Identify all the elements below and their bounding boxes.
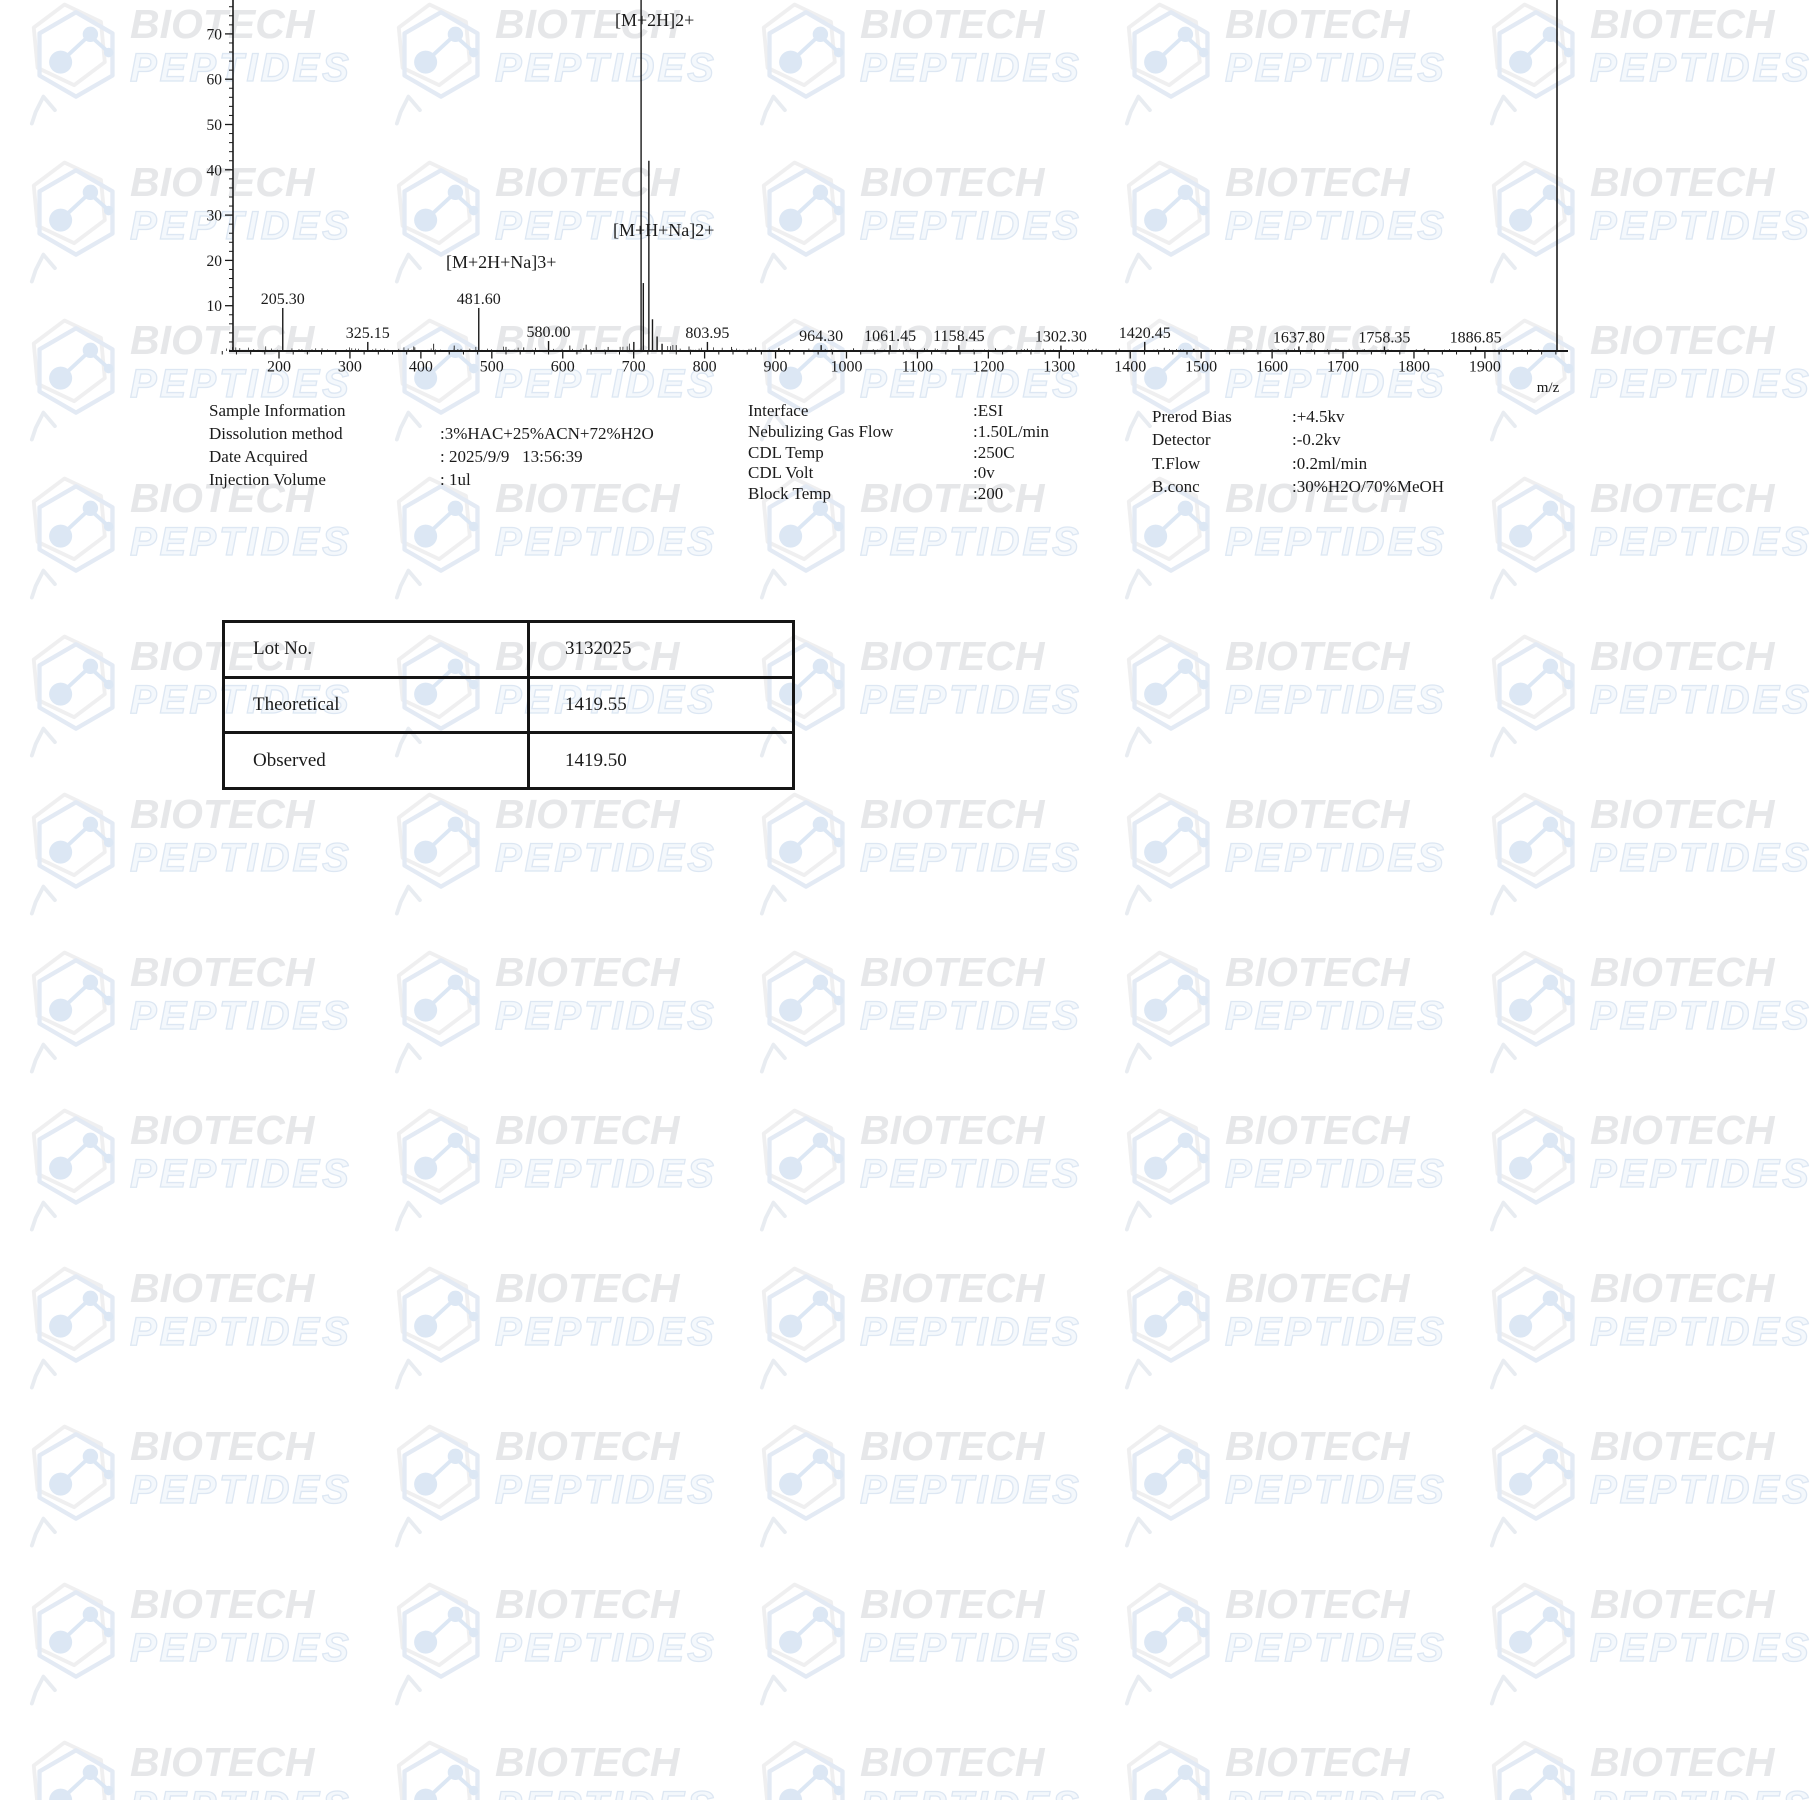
watermark-text: BIOTECH PEPTIDES <box>1590 1426 1810 1510</box>
sample-info-column-1: Sample Information Dissolution method:3%… <box>209 402 654 494</box>
svg-text:700: 700 <box>622 359 646 376</box>
watermark-brand-line1: BIOTECH <box>495 1268 717 1309</box>
hexagon-molecule-icon <box>28 1424 124 1550</box>
watermark-brand-line2: PEPTIDES <box>860 1154 1082 1194</box>
watermark-text: BIOTECH PEPTIDES <box>130 952 352 1036</box>
watermark-tile: BIOTECH PEPTIDES <box>1123 634 1447 760</box>
field-label: Detector <box>1152 431 1292 454</box>
watermark-brand-line1: BIOTECH <box>860 952 1082 993</box>
hexagon-molecule-icon <box>1123 1108 1219 1234</box>
watermark-brand-line1: BIOTECH <box>1590 1110 1810 1151</box>
hexagon-molecule-icon <box>1123 1424 1219 1550</box>
watermark-tile: BIOTECH PEPTIDES <box>393 1582 717 1708</box>
watermark-brand-line2: PEPTIDES <box>1225 996 1447 1036</box>
watermark-brand-line2: PEPTIDES <box>1225 1470 1447 1510</box>
svg-text:1300: 1300 <box>1043 359 1075 376</box>
watermark-tile: BIOTECH PEPTIDES <box>758 1424 1082 1550</box>
hexagon-molecule-icon <box>28 792 124 918</box>
watermark-brand-line2: PEPTIDES <box>1225 1312 1447 1352</box>
watermark-brand-line2: PEPTIDES <box>130 1154 352 1194</box>
svg-text:1420.45: 1420.45 <box>1119 325 1171 342</box>
watermark-brand-line2: PEPTIDES <box>1225 1628 1447 1668</box>
svg-text:60: 60 <box>207 72 223 89</box>
watermark-tile: BIOTECH PEPTIDES <box>1123 950 1447 1076</box>
field-value: : 2025/9/9 13:56:39 <box>440 448 583 471</box>
watermark-text: BIOTECH PEPTIDES <box>130 794 352 878</box>
watermark-brand-line1: BIOTECH <box>860 1426 1082 1467</box>
watermark-brand-line1: BIOTECH <box>1590 794 1810 835</box>
hexagon-molecule-icon <box>28 1108 124 1234</box>
watermark-brand-line2: PEPTIDES <box>130 996 352 1036</box>
watermark-brand-line1: BIOTECH <box>1590 1584 1810 1625</box>
watermark-tile: BIOTECH PEPTIDES <box>393 1424 717 1550</box>
field-label: CDL Volt <box>748 464 973 485</box>
row-value: 1419.55 <box>529 677 794 733</box>
watermark-text: BIOTECH PEPTIDES <box>495 1584 717 1668</box>
watermark-brand-line2: PEPTIDES <box>130 1470 352 1510</box>
watermark-tile: BIOTECH PEPTIDES <box>1488 1266 1810 1392</box>
field-value: : 1ul <box>440 471 471 494</box>
sample-info-column-3: Prerod Bias:+4.5kv Detector:-0.2kv T.Flo… <box>1152 408 1444 501</box>
field-label: Interface <box>748 402 973 423</box>
watermark-brand-line2: PEPTIDES <box>495 838 717 878</box>
watermark-text: BIOTECH PEPTIDES <box>860 952 1082 1036</box>
watermark-brand-line1: BIOTECH <box>860 1742 1082 1783</box>
watermark-brand-line1: BIOTECH <box>495 1584 717 1625</box>
watermark-text: BIOTECH PEPTIDES <box>1590 794 1810 878</box>
watermark-tile: BIOTECH PEPTIDES <box>1488 1740 1810 1800</box>
watermark-tile: BIOTECH PEPTIDES <box>1123 1582 1447 1708</box>
sample-info-section: Sample Information Dissolution method:3%… <box>0 402 1810 522</box>
hexagon-molecule-icon <box>1123 792 1219 918</box>
watermark-brand-line1: BIOTECH <box>495 1426 717 1467</box>
watermark-brand-line1: BIOTECH <box>1225 794 1447 835</box>
watermark-text: BIOTECH PEPTIDES <box>1225 636 1447 720</box>
watermark-text: BIOTECH PEPTIDES <box>1590 1584 1810 1668</box>
watermark-tile: BIOTECH PEPTIDES <box>393 1266 717 1392</box>
field-value: :250C <box>973 444 1015 465</box>
watermark-brand-line1: BIOTECH <box>1590 636 1810 677</box>
field-value: :ESI <box>973 402 1003 423</box>
watermark-brand-line1: BIOTECH <box>860 636 1082 677</box>
report-page: BIOTECH PEPTIDES BIOTECH PEPTIDES <box>0 0 1810 1800</box>
watermark-brand-line2: PEPTIDES <box>860 1628 1082 1668</box>
watermark-text: BIOTECH PEPTIDES <box>495 1742 717 1800</box>
svg-text:40: 40 <box>207 162 223 179</box>
watermark-brand-line1: BIOTECH <box>130 1742 352 1783</box>
watermark-tile: BIOTECH PEPTIDES <box>1488 1582 1810 1708</box>
watermark-brand-line1: BIOTECH <box>495 1742 717 1783</box>
watermark-brand-line2: PEPTIDES <box>1590 1628 1810 1668</box>
field-label: T.Flow <box>1152 455 1292 478</box>
svg-text:500: 500 <box>480 359 504 376</box>
svg-text:1900: 1900 <box>1469 359 1501 376</box>
table-row: Observed 1419.50 <box>224 733 794 789</box>
watermark-brand-line2: PEPTIDES <box>130 1628 352 1668</box>
hexagon-molecule-icon <box>28 1266 124 1392</box>
watermark-text: BIOTECH PEPTIDES <box>130 1110 352 1194</box>
field-value: :-0.2kv <box>1292 431 1341 454</box>
watermark-tile: BIOTECH PEPTIDES <box>1488 792 1810 918</box>
hexagon-molecule-icon <box>393 1108 489 1234</box>
watermark-brand-line2: PEPTIDES <box>860 1786 1082 1800</box>
svg-text:964.30: 964.30 <box>799 328 843 345</box>
watermark-text: BIOTECH PEPTIDES <box>860 1584 1082 1668</box>
hexagon-molecule-icon <box>28 1740 124 1800</box>
watermark-text: BIOTECH PEPTIDES <box>860 1426 1082 1510</box>
watermark-brand-line1: BIOTECH <box>495 794 717 835</box>
hexagon-molecule-icon <box>393 1582 489 1708</box>
watermark-text: BIOTECH PEPTIDES <box>1225 952 1447 1036</box>
hexagon-molecule-icon <box>1123 1266 1219 1392</box>
field-value: :0.2ml/min <box>1292 455 1367 478</box>
hexagon-molecule-icon <box>393 1424 489 1550</box>
watermark-tile: BIOTECH PEPTIDES <box>1488 634 1810 760</box>
field-value: :30%H2O/70%MeOH <box>1292 478 1444 501</box>
field-label: B.conc <box>1152 478 1292 501</box>
watermark-text: BIOTECH PEPTIDES <box>1590 1268 1810 1352</box>
hexagon-molecule-icon <box>28 950 124 1076</box>
hexagon-molecule-icon <box>758 1108 854 1234</box>
watermark-tile: BIOTECH PEPTIDES <box>1488 1424 1810 1550</box>
watermark-text: BIOTECH PEPTIDES <box>860 1742 1082 1800</box>
hexagon-molecule-icon <box>1488 1424 1584 1550</box>
watermark-brand-line1: BIOTECH <box>1225 1584 1447 1625</box>
sample-info-column-2: Interface:ESI Nebulizing Gas Flow:1.50L/… <box>748 402 1049 506</box>
watermark-brand-line2: PEPTIDES <box>1590 680 1810 720</box>
watermark-brand-line1: BIOTECH <box>495 1110 717 1151</box>
svg-text:[M+2H]2+: [M+2H]2+ <box>615 10 694 30</box>
hexagon-molecule-icon <box>758 1582 854 1708</box>
svg-text:20: 20 <box>207 253 223 270</box>
watermark-brand-line1: BIOTECH <box>1225 1110 1447 1151</box>
svg-text:1500: 1500 <box>1185 359 1217 376</box>
watermark-text: BIOTECH PEPTIDES <box>130 1584 352 1668</box>
svg-text:481.60: 481.60 <box>457 291 501 308</box>
svg-text:1302.30: 1302.30 <box>1035 329 1087 346</box>
hexagon-molecule-icon <box>758 1740 854 1800</box>
watermark-text: BIOTECH PEPTIDES <box>1225 1584 1447 1668</box>
watermark-tile: BIOTECH PEPTIDES <box>758 1582 1082 1708</box>
watermark-text: BIOTECH PEPTIDES <box>495 794 717 878</box>
watermark-tile: BIOTECH PEPTIDES <box>1488 1108 1810 1234</box>
watermark-brand-line1: BIOTECH <box>1590 1426 1810 1467</box>
watermark-tile: BIOTECH PEPTIDES <box>393 1740 717 1800</box>
watermark-tile: BIOTECH PEPTIDES <box>758 1108 1082 1234</box>
watermark-brand-line2: PEPTIDES <box>1225 838 1447 878</box>
watermark-text: BIOTECH PEPTIDES <box>1225 1742 1447 1800</box>
row-label: Observed <box>224 733 529 789</box>
hexagon-molecule-icon <box>393 792 489 918</box>
field-label: Dissolution method <box>209 425 440 448</box>
hexagon-molecule-icon <box>393 1266 489 1392</box>
svg-text:1800: 1800 <box>1398 359 1430 376</box>
watermark-text: BIOTECH PEPTIDES <box>1590 1742 1810 1800</box>
watermark-brand-line2: PEPTIDES <box>1590 522 1810 562</box>
watermark-brand-line2: PEPTIDES <box>1225 1786 1447 1800</box>
hexagon-molecule-icon <box>1123 634 1219 760</box>
watermark-brand-line2: PEPTIDES <box>1590 1470 1810 1510</box>
watermark-brand-line1: BIOTECH <box>495 952 717 993</box>
watermark-brand-line2: PEPTIDES <box>130 1312 352 1352</box>
field-label: Nebulizing Gas Flow <box>748 423 973 444</box>
watermark-tile: BIOTECH PEPTIDES <box>1123 1424 1447 1550</box>
row-value: 3132025 <box>529 622 794 678</box>
svg-text:1061.45: 1061.45 <box>864 328 916 345</box>
watermark-brand-line2: PEPTIDES <box>860 680 1082 720</box>
watermark-text: BIOTECH PEPTIDES <box>860 636 1082 720</box>
svg-text:1637.80: 1637.80 <box>1273 329 1325 346</box>
watermark-text: BIOTECH PEPTIDES <box>1590 636 1810 720</box>
hexagon-molecule-icon <box>1488 634 1584 760</box>
watermark-brand-line2: PEPTIDES <box>1225 522 1447 562</box>
watermark-text: BIOTECH PEPTIDES <box>495 952 717 1036</box>
watermark-tile: BIOTECH PEPTIDES <box>758 1266 1082 1392</box>
watermark-brand-line1: BIOTECH <box>860 1584 1082 1625</box>
watermark-brand-line1: BIOTECH <box>860 1110 1082 1151</box>
svg-text:900: 900 <box>764 359 788 376</box>
hexagon-molecule-icon <box>758 1424 854 1550</box>
watermark-brand-line1: BIOTECH <box>1225 1268 1447 1309</box>
hexagon-molecule-icon <box>393 1740 489 1800</box>
watermark-tile: BIOTECH PEPTIDES <box>28 1424 352 1550</box>
hexagon-molecule-icon <box>758 950 854 1076</box>
watermark-brand-line2: PEPTIDES <box>1225 680 1447 720</box>
watermark-brand-line1: BIOTECH <box>130 952 352 993</box>
watermark-tile: BIOTECH PEPTIDES <box>1123 792 1447 918</box>
watermark-text: BIOTECH PEPTIDES <box>1225 1426 1447 1510</box>
watermark-brand-line2: PEPTIDES <box>495 1628 717 1668</box>
svg-text:1600: 1600 <box>1256 359 1288 376</box>
row-label: Lot No. <box>224 622 529 678</box>
svg-text:205.30: 205.30 <box>261 291 305 308</box>
watermark-tile: BIOTECH PEPTIDES <box>28 1582 352 1708</box>
watermark-brand-line1: BIOTECH <box>130 1584 352 1625</box>
watermark-brand-line1: BIOTECH <box>130 1268 352 1309</box>
hexagon-molecule-icon <box>1488 792 1584 918</box>
svg-text:30: 30 <box>207 208 223 225</box>
svg-text:50: 50 <box>207 117 223 134</box>
svg-text:1100: 1100 <box>902 359 933 376</box>
hexagon-molecule-icon <box>1488 950 1584 1076</box>
field-value: :1.50L/min <box>973 423 1049 444</box>
field-label: Prerod Bias <box>1152 408 1292 431</box>
results-table: Lot No. 3132025 Theoretical 1419.55 Obse… <box>222 620 795 790</box>
watermark-tile: BIOTECH PEPTIDES <box>758 792 1082 918</box>
sample-info-title: Sample Information <box>209 402 440 425</box>
field-label: Date Acquired <box>209 448 440 471</box>
field-value: :+4.5kv <box>1292 408 1345 431</box>
hexagon-molecule-icon <box>758 1266 854 1392</box>
watermark-brand-line2: PEPTIDES <box>495 1312 717 1352</box>
watermark-brand-line1: BIOTECH <box>1225 1742 1447 1783</box>
watermark-text: BIOTECH PEPTIDES <box>495 1110 717 1194</box>
watermark-brand-line2: PEPTIDES <box>1590 838 1810 878</box>
watermark-brand-line2: PEPTIDES <box>495 1154 717 1194</box>
watermark-brand-line2: PEPTIDES <box>860 996 1082 1036</box>
watermark-tile: BIOTECH PEPTIDES <box>758 950 1082 1076</box>
watermark-text: BIOTECH PEPTIDES <box>860 1110 1082 1194</box>
watermark-brand-line2: PEPTIDES <box>860 1470 1082 1510</box>
watermark-text: BIOTECH PEPTIDES <box>495 1426 717 1510</box>
watermark-brand-line1: BIOTECH <box>1225 1426 1447 1467</box>
svg-text:1400: 1400 <box>1114 359 1146 376</box>
mass-spectrum-chart: 1020304050607020030040050060070080090010… <box>0 0 1810 400</box>
watermark-brand-line2: PEPTIDES <box>860 838 1082 878</box>
hexagon-molecule-icon <box>28 1582 124 1708</box>
watermark-brand-line2: PEPTIDES <box>1590 1786 1810 1800</box>
watermark-text: BIOTECH PEPTIDES <box>860 794 1082 878</box>
watermark-text: BIOTECH PEPTIDES <box>1225 1110 1447 1194</box>
row-value: 1419.50 <box>529 733 794 789</box>
watermark-text: BIOTECH PEPTIDES <box>1590 1110 1810 1194</box>
watermark-text: BIOTECH PEPTIDES <box>1225 1268 1447 1352</box>
hexagon-molecule-icon <box>1488 1108 1584 1234</box>
watermark-text: BIOTECH PEPTIDES <box>130 1426 352 1510</box>
watermark-brand-line1: BIOTECH <box>860 1268 1082 1309</box>
watermark-brand-line1: BIOTECH <box>1590 952 1810 993</box>
svg-text:600: 600 <box>551 359 575 376</box>
watermark-brand-line2: PEPTIDES <box>1225 1154 1447 1194</box>
svg-text:1700: 1700 <box>1327 359 1359 376</box>
field-label: Block Temp <box>748 485 973 506</box>
svg-text:m/z: m/z <box>1537 380 1560 396</box>
field-label: CDL Temp <box>748 444 973 465</box>
watermark-brand-line2: PEPTIDES <box>495 1470 717 1510</box>
watermark-tile: BIOTECH PEPTIDES <box>393 950 717 1076</box>
svg-text:400: 400 <box>409 359 433 376</box>
svg-text:580.00: 580.00 <box>527 324 571 341</box>
watermark-text: BIOTECH PEPTIDES <box>130 1268 352 1352</box>
table-row: Theoretical 1419.55 <box>224 677 794 733</box>
watermark-tile: BIOTECH PEPTIDES <box>1123 1266 1447 1392</box>
watermark-brand-line2: PEPTIDES <box>1590 1154 1810 1194</box>
watermark-brand-line2: PEPTIDES <box>860 1312 1082 1352</box>
watermark-tile: BIOTECH PEPTIDES <box>1123 1740 1447 1800</box>
field-value: :0v <box>973 464 995 485</box>
watermark-brand-line2: PEPTIDES <box>1590 1312 1810 1352</box>
row-label: Theoretical <box>224 677 529 733</box>
hexagon-molecule-icon <box>28 634 124 760</box>
watermark-tile: BIOTECH PEPTIDES <box>28 950 352 1076</box>
svg-text:1158.45: 1158.45 <box>933 328 984 345</box>
watermark-tile: BIOTECH PEPTIDES <box>28 1108 352 1234</box>
watermark-text: BIOTECH PEPTIDES <box>130 1742 352 1800</box>
watermark-brand-line1: BIOTECH <box>1225 952 1447 993</box>
table-row: Lot No. 3132025 <box>224 622 794 678</box>
watermark-brand-line1: BIOTECH <box>1590 1742 1810 1783</box>
watermark-tile: BIOTECH PEPTIDES <box>1488 950 1810 1076</box>
svg-text:200: 200 <box>267 359 291 376</box>
watermark-tile: BIOTECH PEPTIDES <box>1123 1108 1447 1234</box>
svg-text:70: 70 <box>207 26 223 43</box>
svg-text:1200: 1200 <box>972 359 1004 376</box>
svg-text:[M+H+Na]2+: [M+H+Na]2+ <box>613 220 714 240</box>
hexagon-molecule-icon <box>1488 1266 1584 1392</box>
watermark-tile: BIOTECH PEPTIDES <box>28 792 352 918</box>
svg-text:800: 800 <box>693 359 717 376</box>
field-value: :3%HAC+25%ACN+72%H2O <box>440 425 654 448</box>
watermark-brand-line2: PEPTIDES <box>495 996 717 1036</box>
svg-text:1758.35: 1758.35 <box>1358 329 1410 346</box>
watermark-tile: BIOTECH PEPTIDES <box>28 1266 352 1392</box>
watermark-brand-line2: PEPTIDES <box>130 522 352 562</box>
watermark-text: BIOTECH PEPTIDES <box>860 1268 1082 1352</box>
watermark-tile: BIOTECH PEPTIDES <box>393 792 717 918</box>
watermark-brand-line2: PEPTIDES <box>1590 996 1810 1036</box>
watermark-brand-line1: BIOTECH <box>860 794 1082 835</box>
watermark-text: BIOTECH PEPTIDES <box>1225 794 1447 878</box>
hexagon-molecule-icon <box>393 950 489 1076</box>
svg-text:10: 10 <box>207 298 223 315</box>
watermark-brand-line1: BIOTECH <box>130 1110 352 1151</box>
watermark-brand-line2: PEPTIDES <box>130 1786 352 1800</box>
watermark-brand-line1: BIOTECH <box>1225 636 1447 677</box>
svg-text:300: 300 <box>338 359 362 376</box>
svg-text:1000: 1000 <box>830 359 862 376</box>
hexagon-molecule-icon <box>1488 1582 1584 1708</box>
svg-text:803.95: 803.95 <box>685 325 729 342</box>
svg-text:325.15: 325.15 <box>346 325 390 342</box>
watermark-brand-line2: PEPTIDES <box>495 522 717 562</box>
watermark-brand-line1: BIOTECH <box>130 1426 352 1467</box>
watermark-brand-line2: PEPTIDES <box>860 522 1082 562</box>
watermark-text: BIOTECH PEPTIDES <box>495 1268 717 1352</box>
svg-text:[M+2H+Na]3+: [M+2H+Na]3+ <box>446 252 556 272</box>
watermark-brand-line2: PEPTIDES <box>495 1786 717 1800</box>
watermark-text: BIOTECH PEPTIDES <box>1590 952 1810 1036</box>
field-label: Injection Volume <box>209 471 440 494</box>
hexagon-molecule-icon <box>1123 1740 1219 1800</box>
watermark-brand-line2: PEPTIDES <box>130 838 352 878</box>
watermark-tile: BIOTECH PEPTIDES <box>758 634 1082 760</box>
field-value: :200 <box>973 485 1003 506</box>
watermark-tile: BIOTECH PEPTIDES <box>393 1108 717 1234</box>
watermark-brand-line1: BIOTECH <box>130 794 352 835</box>
hexagon-molecule-icon <box>1123 1582 1219 1708</box>
hexagon-molecule-icon <box>1123 950 1219 1076</box>
watermark-tile: BIOTECH PEPTIDES <box>28 1740 352 1800</box>
hexagon-molecule-icon <box>758 792 854 918</box>
svg-text:1886.85: 1886.85 <box>1450 329 1502 346</box>
hexagon-molecule-icon <box>1488 1740 1584 1800</box>
watermark-brand-line1: BIOTECH <box>1590 1268 1810 1309</box>
watermark-tile: BIOTECH PEPTIDES <box>758 1740 1082 1800</box>
